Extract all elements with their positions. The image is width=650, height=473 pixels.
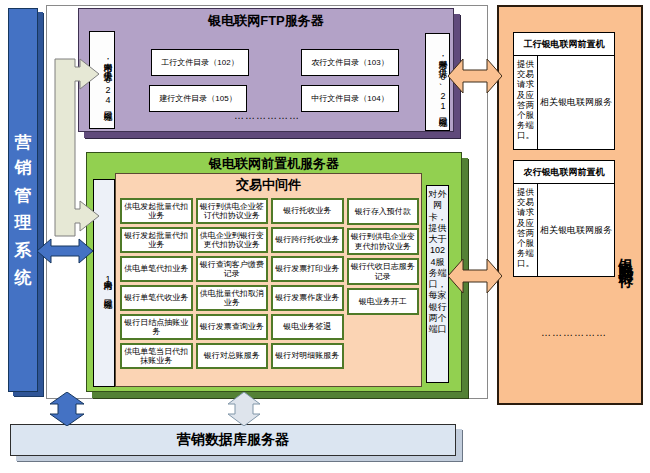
marketing-management-system-bar: 营销管理系统: [8, 8, 38, 392]
abc-services-label: 相关银电联网服务: [538, 184, 614, 276]
abc-ports-label: 提供交易请求及应答两个服务端口。: [514, 184, 538, 276]
bank-network-panel: 工行银电联网前置机 提供交易请求及应答两个服务端口。 相关银电联网服务 农行银电…: [497, 5, 643, 405]
ftp-external-nic-label: 对外网卡，提供20、21服务端口: [425, 33, 450, 131]
middleware-service: 银行对总账服务: [196, 343, 269, 369]
middleware-service: 银行单笔代收业务: [120, 285, 193, 311]
ccb-file-directory: 建行文件目录（105）: [149, 85, 247, 112]
middleware-service: 银行到供电企业变更代扣协议业务: [347, 228, 420, 255]
middleware-service: 银行发票查询业务: [196, 314, 269, 340]
abc-file-directory: 农行文件目录（103）: [301, 49, 399, 76]
middleware-service: 银行跨行托收业务: [271, 227, 344, 253]
middleware-service: 银行存入预付款: [347, 198, 420, 225]
blue-vertical-double-arrow: [48, 392, 86, 426]
middleware-service: 银电业务开工: [347, 288, 420, 315]
middleware-title: 交易中间件: [116, 176, 421, 194]
icbc-frontend-box: 工行银电联网前置机 提供交易请求及应答两个服务端口。 相关银电联网服务: [513, 32, 615, 150]
middleware-service: 供电批量代扣取消业务: [196, 285, 269, 311]
ftp-server-title: 银电联网FTP服务器: [79, 12, 453, 30]
middleware-service: 银行托收业务: [271, 198, 344, 224]
db-server-title: 营销数据库服务器: [177, 431, 289, 449]
middleware-service: 供电发起批量代扣业务: [120, 198, 193, 224]
middleware-col-4: 银行存入预付款 银行到供电企业变更代扣协议业务 银行代收日志服务记录 银电业务开…: [347, 198, 420, 384]
middleware-service: 银行发起批量代扣业务: [120, 227, 193, 253]
middleware-service: 银行到供电企业签订代扣协议业务: [196, 198, 269, 224]
middleware-service: 银行发票打印业务: [271, 256, 344, 282]
middleware-service: 供电单笔代扣业务: [120, 256, 193, 282]
bank-electric-network-diagram: 营销管理系统 银电联网FTP服务器 对内网卡，提供大于1024服务端口 对外网卡…: [0, 0, 650, 473]
middleware-service: 银行代收日志服务记录: [347, 258, 420, 285]
middleware-service: 供电单笔当日代扣抹账业务: [120, 343, 193, 369]
bank-panel-title: 银电联网银行: [616, 175, 642, 335]
gray-vertical-double-arrow: [226, 392, 262, 426]
frontend-server-title: 银电联网前置机服务器: [87, 155, 461, 173]
middleware-service: 银行日结点抽账业务: [120, 314, 193, 340]
middleware-service: 银行对明细账服务: [271, 343, 344, 369]
peach-double-arrow-ftp-bank: [448, 56, 502, 96]
frontend-server-box: 银电联网前置机服务器 对内网卡1，服务端口 交易中间件 供电发起批量代扣业务 银…: [86, 152, 462, 392]
peach-double-arrow-frontend-bank: [448, 256, 502, 296]
bank-panel-ellipsis: ………………: [524, 327, 624, 338]
middleware-service: 银电业务签退: [271, 314, 344, 340]
middleware-service: 银行查询客户缴费记录: [196, 256, 269, 282]
icbc-frontend-title: 工行银电联网前置机: [514, 33, 614, 56]
icbc-ports-label: 提供交易请求及应答两个服务端口。: [514, 56, 538, 149]
icbc-file-directory: 工行文件目录（102）: [151, 49, 249, 76]
middleware-service: 供电企业到银行变更代扣协议业务: [196, 227, 269, 253]
ftp-ellipsis: ………………: [167, 110, 367, 121]
marketing-system-title: 营销管理系统: [12, 119, 35, 281]
abc-frontend-title: 农行银电联网前置机: [514, 161, 614, 184]
middleware-service: 银行发票作废业务: [271, 285, 344, 311]
middleware-col-2: 银行到供电企业签订代扣协议业务 供电企业到银行变更代扣协议业务 银行查询客户缴费…: [196, 198, 269, 384]
boc-file-directory: 中行文件目录（104）: [301, 85, 399, 112]
middleware-col-1: 供电发起批量代扣业务 银行发起批量代扣业务 供电单笔代扣业务 银行单笔代收业务 …: [120, 198, 193, 384]
abc-frontend-box: 农行银电联网前置机 提供交易请求及应答两个服务端口。 相关银电联网服务: [513, 160, 615, 277]
ftp-server-box: 银电联网FTP服务器 对内网卡，提供大于1024服务端口 对外网卡，提供20、2…: [78, 8, 454, 132]
middleware-grid: 供电发起批量代扣业务 银行发起批量代扣业务 供电单笔代扣业务 银行单笔代收业务 …: [120, 198, 419, 384]
beige-bracket-connector: [52, 55, 102, 240]
frontend-external-nic-label: 对外网卡，提供大于1024服务端口，每家银行两个端口: [426, 185, 449, 383]
middleware-col-3: 银行托收业务 银行跨行托收业务 银行发票打印业务 银行发票作废业务 银电业务签退…: [271, 198, 344, 384]
icbc-services-label: 相关银电联网服务: [538, 56, 614, 149]
transaction-middleware-box: 交易中间件 供电发起批量代扣业务 银行发起批量代扣业务 供电单笔代扣业务 银行单…: [115, 173, 422, 387]
marketing-db-server-bar: 营销数据库服务器: [10, 424, 456, 456]
blue-horizontal-double-arrow: [37, 237, 93, 265]
